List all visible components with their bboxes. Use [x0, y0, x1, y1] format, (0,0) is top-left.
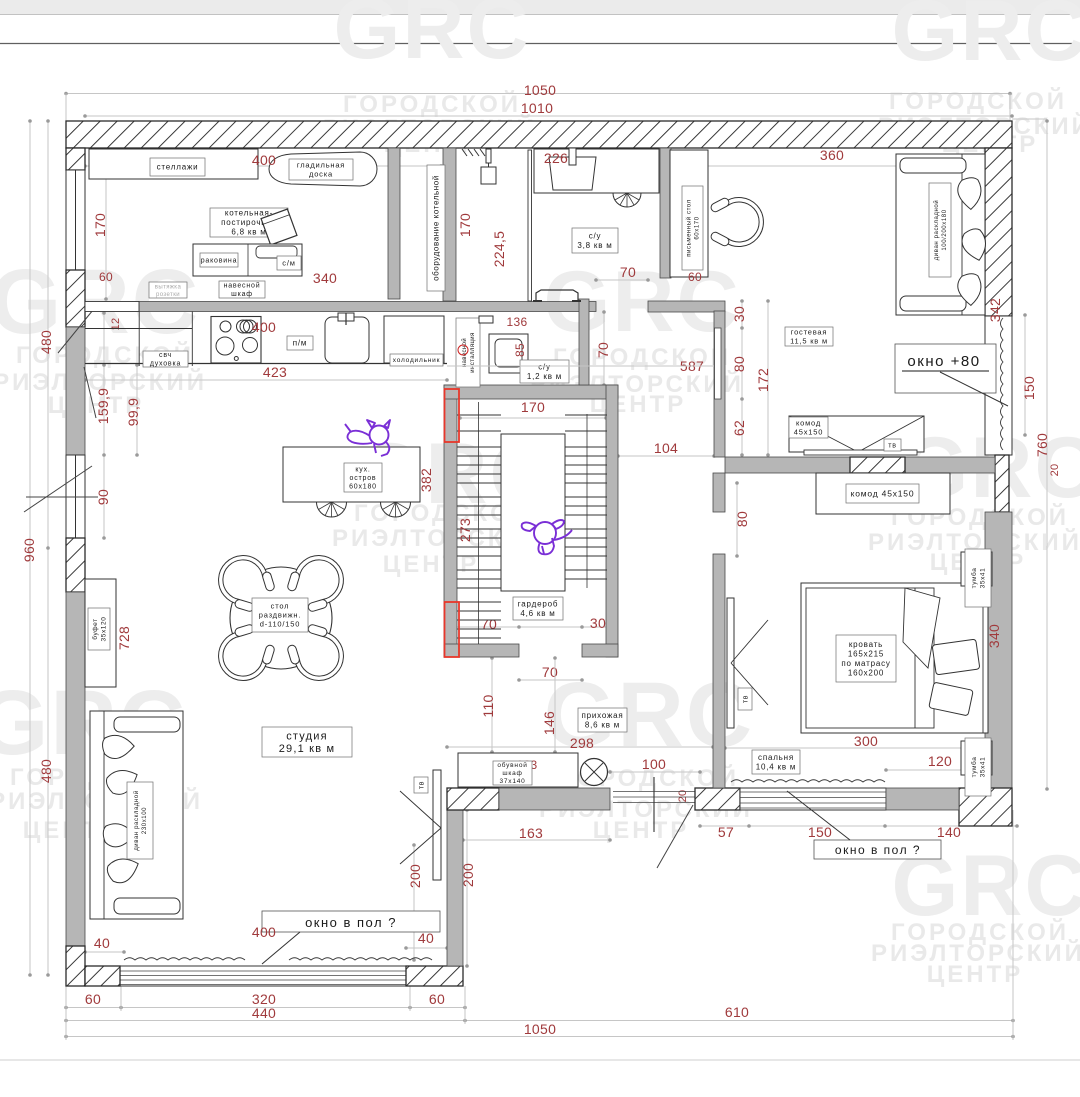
svg-text:тв: тв	[888, 442, 897, 449]
svg-text:60: 60	[99, 270, 113, 284]
svg-text:300: 300	[854, 733, 878, 749]
svg-text:гладильная: гладильная	[297, 161, 345, 170]
svg-text:навесной: навесной	[224, 282, 261, 290]
svg-text:70: 70	[595, 342, 611, 358]
svg-text:100: 100	[642, 756, 666, 772]
svg-text:140: 140	[937, 824, 961, 840]
svg-text:120: 120	[928, 753, 952, 769]
svg-text:буфет: буфет	[91, 618, 99, 639]
svg-text:298: 298	[570, 735, 594, 751]
svg-text:60: 60	[429, 991, 445, 1007]
svg-text:раковина: раковина	[201, 257, 238, 264]
svg-text:письменный стол: письменный стол	[686, 199, 693, 257]
svg-text:273: 273	[457, 518, 473, 542]
svg-text:6,8 кв м: 6,8 кв м	[231, 228, 266, 237]
svg-text:п/м: п/м	[293, 339, 307, 348]
svg-text:400: 400	[252, 319, 276, 335]
svg-text:57: 57	[718, 824, 734, 840]
svg-text:диван раскладной: диван раскладной	[933, 200, 940, 261]
svg-text:35х120: 35х120	[100, 617, 107, 642]
svg-text:3,8 кв м: 3,8 кв м	[577, 241, 612, 250]
svg-text:30: 30	[590, 615, 606, 631]
svg-text:прихожая: прихожая	[581, 711, 623, 720]
svg-text:99,9: 99,9	[125, 398, 141, 426]
svg-text:ЦЕНТР: ЦЕНТР	[383, 551, 480, 578]
svg-text:480: 480	[38, 330, 54, 354]
svg-text:760: 760	[1034, 433, 1050, 457]
svg-text:окно в пол ?: окно в пол ?	[835, 843, 921, 857]
svg-text:1,2 кв м: 1,2 кв м	[527, 372, 562, 381]
svg-text:ГОРОДСКОЙ: ГОРОДСКОЙ	[343, 90, 521, 118]
svg-text:400: 400	[252, 924, 276, 940]
svg-text:85: 85	[513, 343, 527, 357]
svg-text:70: 70	[481, 616, 497, 632]
svg-text:230х100: 230х100	[142, 807, 148, 834]
svg-text:163: 163	[519, 825, 543, 841]
svg-text:60х180: 60х180	[349, 483, 377, 490]
svg-text:224,5: 224,5	[491, 231, 507, 268]
svg-text:инсталляция: инсталляция	[470, 332, 476, 372]
svg-text:с/м: с/м	[282, 259, 295, 268]
svg-text:10,4 кв м: 10,4 кв м	[756, 762, 796, 771]
svg-text:тв: тв	[418, 781, 425, 789]
svg-text:159,9: 159,9	[95, 388, 111, 425]
svg-text:GRC: GRC	[891, 0, 1080, 79]
svg-text:728: 728	[116, 626, 132, 650]
svg-text:ГОРОДСКОЙ: ГОРОДСКОЙ	[889, 87, 1067, 115]
svg-text:165х215: 165х215	[848, 649, 884, 658]
svg-text:200: 200	[407, 864, 423, 888]
svg-text:35х41: 35х41	[979, 757, 986, 778]
svg-text:кровать: кровать	[849, 640, 883, 649]
svg-text:610: 610	[725, 1004, 749, 1020]
svg-text:40: 40	[418, 930, 434, 946]
svg-text:свч: свч	[159, 352, 172, 359]
svg-text:45х150: 45х150	[794, 428, 823, 437]
svg-text:160х200: 160х200	[848, 668, 884, 677]
svg-text:вытяжка: вытяжка	[155, 284, 182, 290]
svg-text:20: 20	[1049, 464, 1061, 477]
svg-text:104: 104	[654, 440, 678, 456]
svg-text:60: 60	[85, 991, 101, 1007]
svg-text:70: 70	[542, 664, 558, 680]
svg-text:по матрасу: по матрасу	[841, 659, 890, 668]
svg-text:480: 480	[38, 759, 54, 783]
svg-text:ЦЕНТР: ЦЕНТР	[927, 961, 1024, 988]
svg-text:4,6 кв м: 4,6 кв м	[520, 609, 555, 618]
svg-text:29,1 кв м: 29,1 кв м	[279, 743, 336, 755]
svg-text:35х41: 35х41	[979, 568, 986, 589]
svg-text:шкаф: шкаф	[502, 770, 522, 777]
svg-text:с/у: с/у	[589, 231, 602, 240]
svg-text:342: 342	[987, 298, 1003, 322]
svg-text:окно в пол ?: окно в пол ?	[305, 915, 397, 930]
svg-text:136: 136	[507, 315, 528, 329]
svg-text:340: 340	[986, 624, 1002, 648]
svg-text:40: 40	[94, 935, 110, 951]
svg-text:146: 146	[541, 711, 557, 735]
svg-text:GRC: GRC	[333, 0, 530, 77]
svg-text:8,6 кв м: 8,6 кв м	[585, 720, 620, 729]
svg-text:170: 170	[457, 213, 473, 237]
svg-text:60: 60	[688, 270, 702, 284]
svg-text:d-110/150: d-110/150	[260, 620, 300, 629]
svg-text:раздвижн.: раздвижн.	[259, 611, 302, 620]
svg-text:оборудование котельной: оборудование котельной	[432, 175, 441, 281]
svg-text:комод 45х150: комод 45х150	[851, 488, 915, 498]
svg-text:150: 150	[1021, 376, 1037, 400]
svg-text:диван раскладной: диван раскладной	[133, 790, 140, 851]
svg-text:62: 62	[731, 420, 747, 436]
svg-text:с/у: с/у	[538, 362, 551, 371]
svg-text:тумба: тумба	[970, 757, 978, 778]
svg-text:11,5 кв м: 11,5 кв м	[790, 337, 828, 346]
svg-text:стеллажи: стеллажи	[157, 163, 199, 172]
svg-text:440: 440	[252, 1005, 276, 1021]
svg-text:340: 340	[313, 270, 337, 286]
svg-text:37х140: 37х140	[499, 778, 525, 785]
svg-text:1050: 1050	[524, 1021, 556, 1037]
svg-text:спальня: спальня	[758, 753, 794, 762]
svg-text:обувной: обувной	[497, 761, 527, 769]
svg-text:розетки: розетки	[156, 292, 180, 298]
svg-text:226: 226	[544, 150, 568, 166]
svg-text:170: 170	[521, 399, 545, 415]
svg-text:стол: стол	[271, 602, 290, 611]
svg-text:400: 400	[252, 152, 276, 168]
svg-text:шкаф: шкаф	[231, 291, 253, 298]
svg-text:170: 170	[92, 213, 108, 237]
svg-text:студия: студия	[286, 730, 328, 742]
svg-text:360: 360	[820, 147, 844, 163]
svg-text:1010: 1010	[521, 100, 553, 116]
svg-text:холодильник: холодильник	[393, 357, 440, 364]
svg-text:80: 80	[731, 356, 747, 372]
svg-text:доска: доска	[309, 170, 333, 179]
svg-text:60х170: 60х170	[695, 216, 701, 239]
svg-text:остров: остров	[350, 475, 377, 482]
svg-text:100/200х180: 100/200х180	[942, 209, 948, 250]
svg-text:150: 150	[808, 824, 832, 840]
svg-text:тв: тв	[742, 695, 749, 703]
svg-text:80: 80	[734, 511, 750, 527]
svg-text:кух.: кух.	[355, 466, 370, 473]
svg-text:110: 110	[480, 694, 496, 717]
svg-text:гостевая: гостевая	[791, 328, 828, 337]
svg-text:комод: комод	[796, 419, 821, 428]
svg-text:960: 960	[21, 538, 37, 562]
svg-text:окно +80: окно +80	[907, 353, 980, 370]
svg-text:тумба: тумба	[970, 568, 978, 589]
svg-text:30: 30	[731, 306, 747, 322]
svg-text:1050: 1050	[524, 82, 556, 98]
svg-text:70: 70	[620, 264, 636, 280]
svg-text:духовка: духовка	[150, 361, 181, 368]
svg-text:423: 423	[263, 364, 287, 380]
svg-text:172: 172	[755, 368, 771, 392]
svg-text:гардероб: гардероб	[518, 599, 558, 608]
